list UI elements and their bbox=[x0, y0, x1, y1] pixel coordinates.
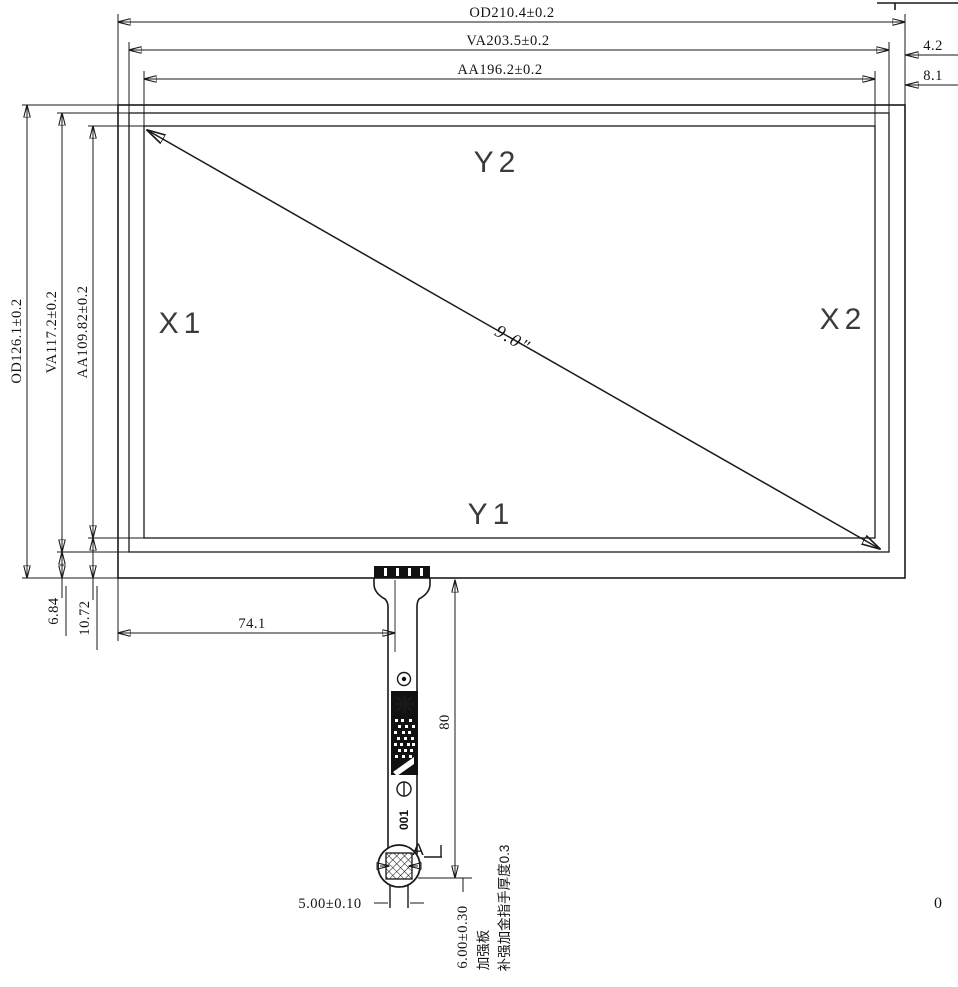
note-gold-finger: 补强加金指手厚度0.3 bbox=[497, 845, 512, 972]
dim-stiffener-width-label: 6.00±0.30 bbox=[455, 905, 471, 968]
dim-aa-width-label: AA196.2±0.2 bbox=[457, 62, 542, 78]
dim-tail-length-label: 80 bbox=[437, 714, 453, 730]
top-dimensions: OD210.4±0.2 VA203.5±0.2 AA196.2±0.2 4.2 … bbox=[118, 5, 958, 126]
touch-panel-drawing: OD210.4±0.2 VA203.5±0.2 AA196.2±0.2 4.2 … bbox=[0, 0, 958, 987]
connector-pad-bar bbox=[374, 566, 430, 578]
dim-aa-bottom-gap-label: 10.72 bbox=[77, 600, 93, 635]
fpc-serial-label: 001 bbox=[397, 810, 411, 830]
tail-dimensions: 80 5.00±0.10 6.00±0.30 加强板 补强加金指手厚度0.3 bbox=[298, 580, 512, 971]
detail-a-label: A bbox=[412, 840, 424, 859]
hatched-gold-finger-area bbox=[386, 853, 412, 879]
datamatrix-marking bbox=[391, 691, 418, 776]
electrode-label-y1: Y1 bbox=[468, 498, 515, 531]
drawing-sheet: OD210.4±0.2 VA203.5±0.2 AA196.2±0.2 4.2 … bbox=[0, 0, 958, 987]
corner-text: 0 bbox=[934, 895, 942, 912]
dim-va-height-label: VA117.2±0.2 bbox=[44, 291, 60, 374]
electrode-label-x2: X2 bbox=[820, 303, 867, 336]
sheet-border-fragment bbox=[877, 3, 958, 10]
dim-tail-width-label: 5.00±0.10 bbox=[298, 896, 361, 912]
diagonal-size-label: 9.0" bbox=[492, 321, 535, 357]
dim-od-width-label: OD210.4±0.2 bbox=[469, 5, 554, 21]
electrode-labels: Y2 X1 X2 Y1 9.0" bbox=[159, 146, 867, 531]
note-stiffener: 加强板 bbox=[476, 929, 491, 970]
electrode-label-y2: Y2 bbox=[474, 146, 521, 179]
left-dimensions: OD126.1±0.2 VA117.2±0.2 AA109.82±0.2 bbox=[9, 105, 144, 578]
dim-aa-height-label: AA109.82±0.2 bbox=[75, 286, 91, 379]
dim-va-width-label: VA203.5±0.2 bbox=[466, 33, 549, 49]
dim-aa-gap-label: 8.1 bbox=[923, 68, 943, 84]
dim-od-height-label: OD126.1±0.2 bbox=[9, 298, 25, 383]
electrode-label-x1: X1 bbox=[159, 307, 206, 340]
dim-tail-offset-label: 74.1 bbox=[238, 616, 265, 632]
dim-va-gap-label: 4.2 bbox=[923, 38, 943, 54]
bottom-edge-dimensions: 6.84 10.72 74.1 bbox=[46, 538, 395, 650]
fpc-markings: 001 bbox=[391, 673, 418, 831]
dim-va-bottom-gap-label: 6.84 bbox=[46, 597, 62, 625]
